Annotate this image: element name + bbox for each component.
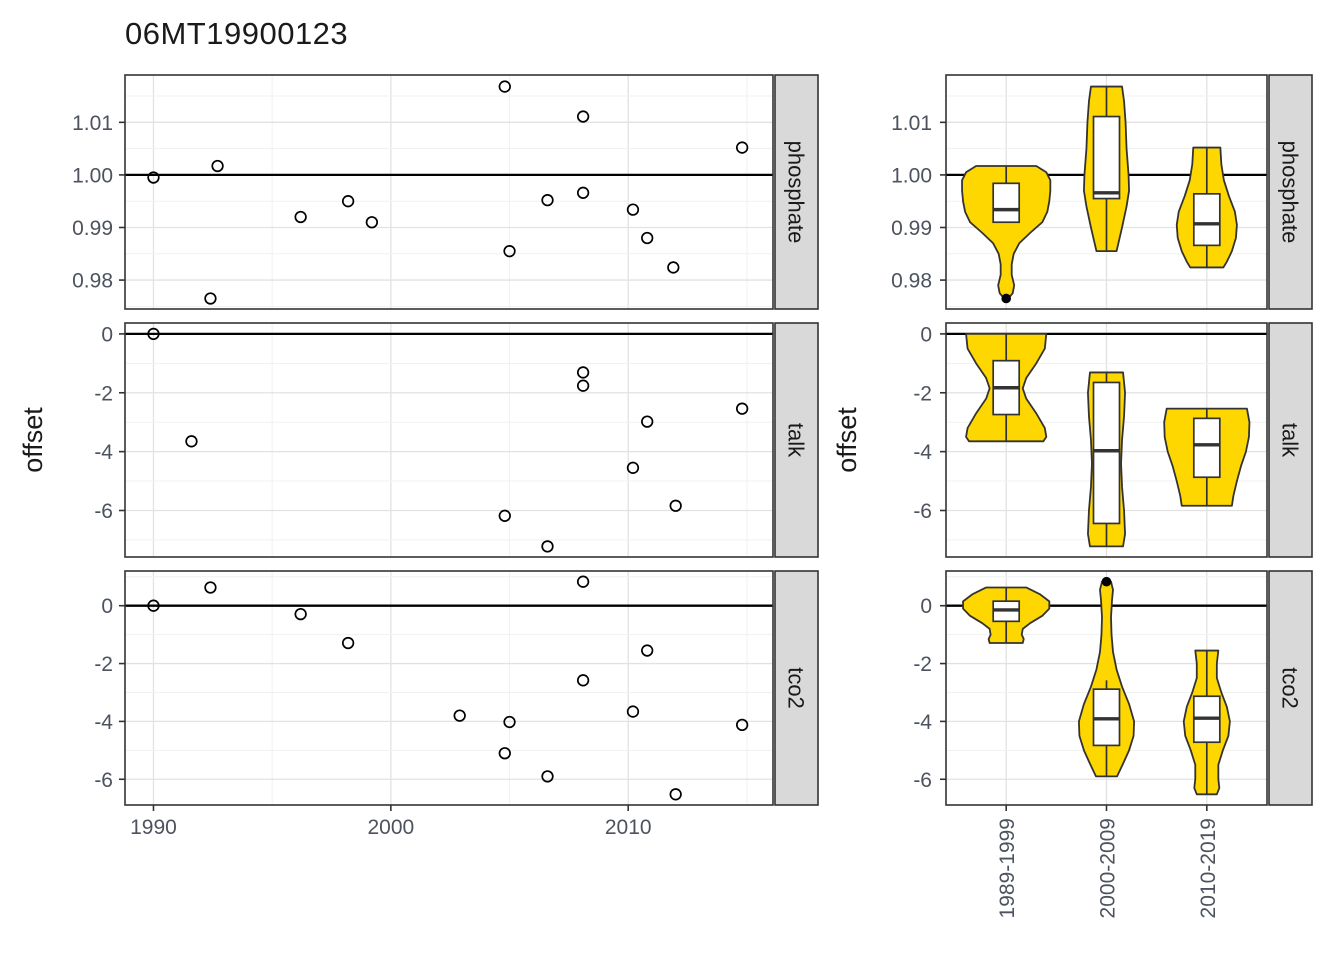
x-tick-label: 2010	[605, 816, 652, 839]
y-tick-label: 0	[101, 323, 113, 346]
y-tick-label: -6	[913, 500, 932, 523]
y-tick-label: -6	[913, 769, 932, 792]
y-tick-label: 1.00	[891, 164, 932, 187]
y-tick-label: -4	[913, 441, 932, 464]
y-tick-label: -6	[94, 500, 113, 523]
box	[1094, 117, 1120, 199]
y-tick-label: 1.01	[891, 112, 932, 135]
facet-panel-phosphate: phosphate0.980.991.001.01	[891, 75, 1312, 309]
y-axis-title: offset	[832, 407, 862, 473]
y-tick-label: 0.99	[72, 217, 113, 240]
y-tick-label: 0.98	[72, 270, 113, 293]
figure-root: 06MT19900123 offsetphosphate0.980.991.00…	[0, 0, 1344, 960]
y-tick-label: -6	[94, 769, 113, 792]
y-tick-label: -4	[94, 711, 113, 734]
facet-strip-label: phosphate	[784, 141, 809, 244]
y-tick-label: -2	[913, 653, 932, 676]
decade-tick-label: 1989-1999	[996, 818, 1019, 918]
box	[993, 183, 1019, 222]
y-tick-label: 0	[920, 595, 932, 618]
panel-background	[125, 75, 773, 309]
y-tick-label: 0	[920, 323, 932, 346]
y-tick-label: 0.99	[891, 217, 932, 240]
facet-strip-label: tco2	[1278, 667, 1303, 709]
x-tick-label: 1990	[130, 816, 177, 839]
y-tick-label: 1.01	[72, 112, 113, 135]
facet-panel-tco2: tco20-2-4-6199020002010	[94, 571, 818, 839]
facet-panel-talk: talk0-2-4-6	[913, 323, 1312, 557]
violin-plot: offsetphosphate0.980.991.001.01talk0-2-4…	[832, 75, 1312, 918]
y-tick-label: -2	[94, 653, 113, 676]
y-tick-label: -2	[913, 382, 932, 405]
panel-background	[125, 323, 773, 557]
box	[1194, 418, 1220, 477]
decade-tick-label: 2010-2019	[1197, 818, 1220, 918]
facet-panel-phosphate: phosphate0.980.991.001.01	[72, 75, 818, 309]
facet-panel-tco2: tco20-2-4-61989-19992000-20092010-2019	[913, 571, 1312, 918]
box	[1194, 194, 1220, 246]
y-tick-label: 0.98	[891, 270, 932, 293]
y-tick-label: -4	[913, 711, 932, 734]
facet-strip-label: phosphate	[1278, 141, 1303, 244]
y-tick-label: 0	[101, 595, 113, 618]
y-axis-title: offset	[18, 407, 48, 473]
decade-tick-label: 2000-2009	[1097, 818, 1120, 918]
facet-panel-talk: talk0-2-4-6	[94, 323, 818, 557]
facet-strip-label: tco2	[784, 667, 809, 709]
faceted-offset-chart: offsetphosphate0.980.991.001.01talk0-2-4…	[0, 0, 1344, 960]
facet-strip-label: talk	[1278, 423, 1303, 458]
facet-strip-label: talk	[784, 423, 809, 458]
outlier-point	[1001, 294, 1011, 304]
y-tick-label: 1.00	[72, 164, 113, 187]
box	[1094, 382, 1120, 523]
scatter-plot: offsetphosphate0.980.991.001.01talk0-2-4…	[18, 75, 818, 839]
y-tick-label: -4	[94, 441, 113, 464]
x-tick-label: 2000	[367, 816, 414, 839]
y-tick-label: -2	[94, 382, 113, 405]
outlier-point	[1102, 577, 1112, 587]
